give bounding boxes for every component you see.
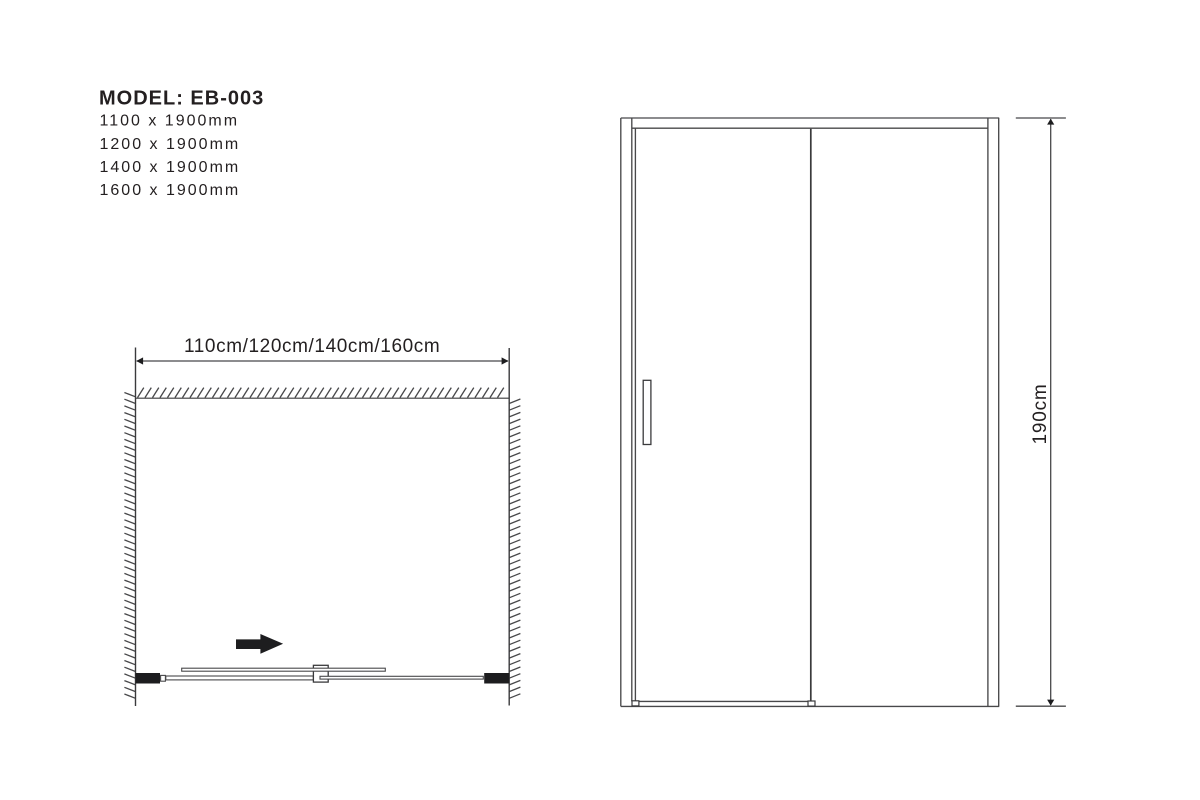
svg-text:110cm/120cm/140cm/160cm: 110cm/120cm/140cm/160cm — [184, 336, 440, 357]
svg-text:1200 x 1900mm: 1200 x 1900mm — [100, 136, 241, 153]
svg-text:1600 x 1900mm: 1600 x 1900mm — [100, 182, 241, 199]
svg-text:1400 x 1900mm: 1400 x 1900mm — [100, 159, 241, 176]
svg-text:MODEL: EB-003: MODEL: EB-003 — [99, 88, 264, 110]
svg-text:1100 x 1900mm: 1100 x 1900mm — [100, 113, 240, 130]
svg-text:190cm: 190cm — [1030, 383, 1051, 444]
